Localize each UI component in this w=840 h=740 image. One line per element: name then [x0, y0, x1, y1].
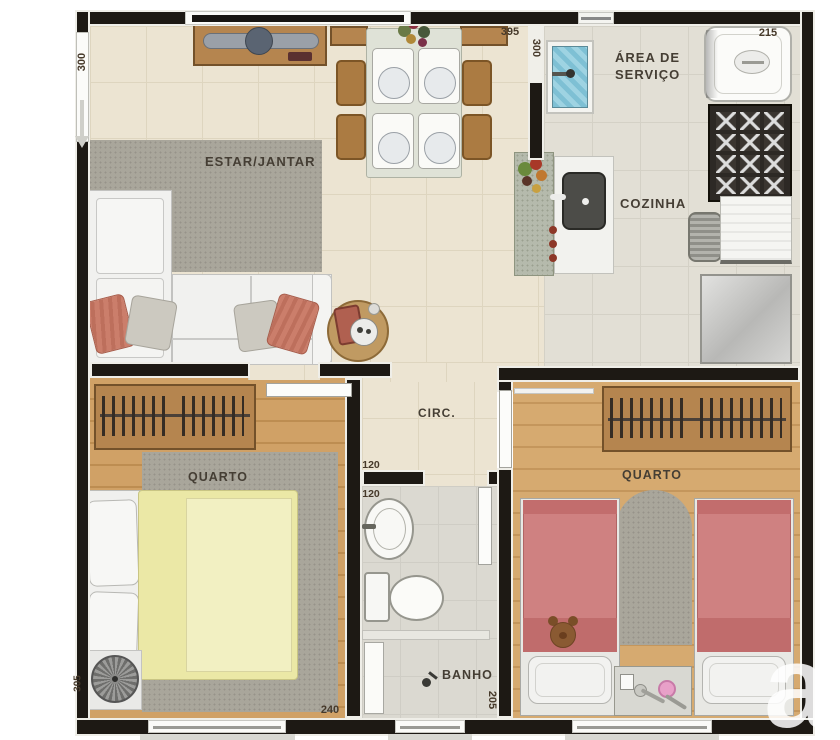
shower-head-icon: [420, 672, 438, 688]
twin-bed-duvet-fold: [523, 500, 617, 514]
place-setting: [372, 113, 414, 169]
door-bedroom-left: [266, 383, 352, 397]
bed-pillow: [87, 499, 140, 587]
bathroom-sink-basin: [373, 508, 406, 550]
side-table-cup: [368, 303, 380, 315]
side-table-jug: [350, 318, 378, 346]
shower-partition: [362, 630, 490, 640]
living-room-label: ESTAR/JANTAR: [205, 154, 315, 169]
bedroom-left-label: QUARTO: [188, 470, 248, 484]
dining-chair-bottom-left: [336, 114, 366, 160]
dim-service-wall: 300: [530, 28, 542, 68]
dining-chair-top-right: [462, 60, 492, 106]
teddy-bear: [546, 614, 582, 654]
fan-hub: [110, 674, 120, 684]
sofa-chaise-back-cushion: [96, 198, 164, 274]
bathroom-sink-faucet: [362, 524, 376, 529]
window-top-living: [185, 11, 411, 25]
stove-knob: [549, 226, 557, 234]
door-bathroom: [478, 487, 492, 565]
window-sill: [388, 734, 472, 740]
window-top-service: [578, 12, 614, 24]
wardrobe-right-hangers: [610, 398, 690, 438]
refrigerator: [700, 274, 792, 364]
dining-bench-left: [330, 26, 368, 46]
wardrobe-right-hangers: [700, 398, 782, 438]
kitchen-label: COZINHA: [620, 196, 686, 211]
hall-label: CIRC.: [418, 406, 456, 420]
window-left-arrowhead: [75, 136, 89, 148]
toilet-bowl: [389, 575, 444, 621]
dim-bath-door: 120: [356, 488, 386, 500]
door-bedroom-right: [499, 390, 512, 468]
window-sill: [565, 734, 719, 740]
sink-drain: [582, 198, 589, 205]
floor-plan: ESTAR/JANTAR ÁREA DE SERVIÇO COZINHA CIR…: [0, 0, 840, 740]
twin-bed-pillow: [528, 656, 612, 704]
window-bottom-bath: [395, 720, 465, 733]
dining-chair-top-left: [336, 60, 366, 106]
watermark: a: [764, 628, 830, 740]
fruit-bowl: [516, 158, 552, 200]
dim-living-width: 395: [492, 26, 528, 38]
dim-service-width: 215: [748, 27, 788, 39]
wall-bedroom-right-lower: [497, 468, 513, 718]
dim-hall-width: 120: [356, 459, 386, 471]
dim-bath-length: 205: [486, 680, 498, 720]
kitchen-chair: [688, 212, 722, 262]
stove: [708, 104, 792, 202]
tv-speaker: [245, 27, 273, 55]
laundry-tub-drain: [566, 69, 575, 78]
wall-bath-top-b: [487, 470, 499, 486]
jug-dot: [366, 329, 371, 334]
wardrobe-left-hangers: [182, 396, 244, 436]
place-setting: [418, 48, 460, 104]
wall-bath-top-a: [362, 470, 425, 486]
bedroom-right-rug: [616, 490, 692, 645]
twin-bed-duvet-fold: [697, 500, 791, 514]
shower-door: [364, 642, 384, 714]
dim-bedroom-left-width: 240: [312, 704, 348, 716]
dining-chair-bottom-right: [462, 114, 492, 160]
stove-knob: [549, 254, 557, 262]
sofa-pillow: [124, 294, 178, 351]
window-bottom-bedroom-left: [148, 720, 286, 733]
window-sill: [140, 734, 295, 740]
window-left-arrow: [80, 100, 84, 136]
sink-faucet: [550, 194, 566, 200]
hall-top-floor: [390, 362, 497, 382]
place-setting: [372, 48, 414, 104]
stove-knob: [549, 240, 557, 248]
window-bottom-bedroom-right: [572, 720, 712, 733]
jug-dot: [357, 327, 363, 333]
service-area-label-line2: SERVIÇO: [615, 67, 680, 82]
wall-kitchen-bedroom: [497, 366, 800, 382]
nightstand-lamp: [620, 674, 634, 690]
bedroom-right-label: QUARTO: [622, 468, 682, 482]
wall-bath-left: [345, 378, 362, 718]
dim-living-window: 300: [76, 42, 88, 82]
wall-living-bedroom-a: [90, 362, 250, 378]
bed-duvet-fold: [186, 498, 292, 672]
toilet-tank: [364, 572, 390, 622]
dim-bedroom-left-window: 305: [73, 664, 84, 704]
wardrobe-left-hangers: [102, 396, 172, 436]
shelf-line: [514, 388, 594, 394]
kitchen-counter: [720, 196, 792, 264]
service-area-label-line1: ÁREA DE: [615, 50, 680, 65]
place-setting: [418, 113, 460, 169]
media-remote: [288, 52, 312, 61]
